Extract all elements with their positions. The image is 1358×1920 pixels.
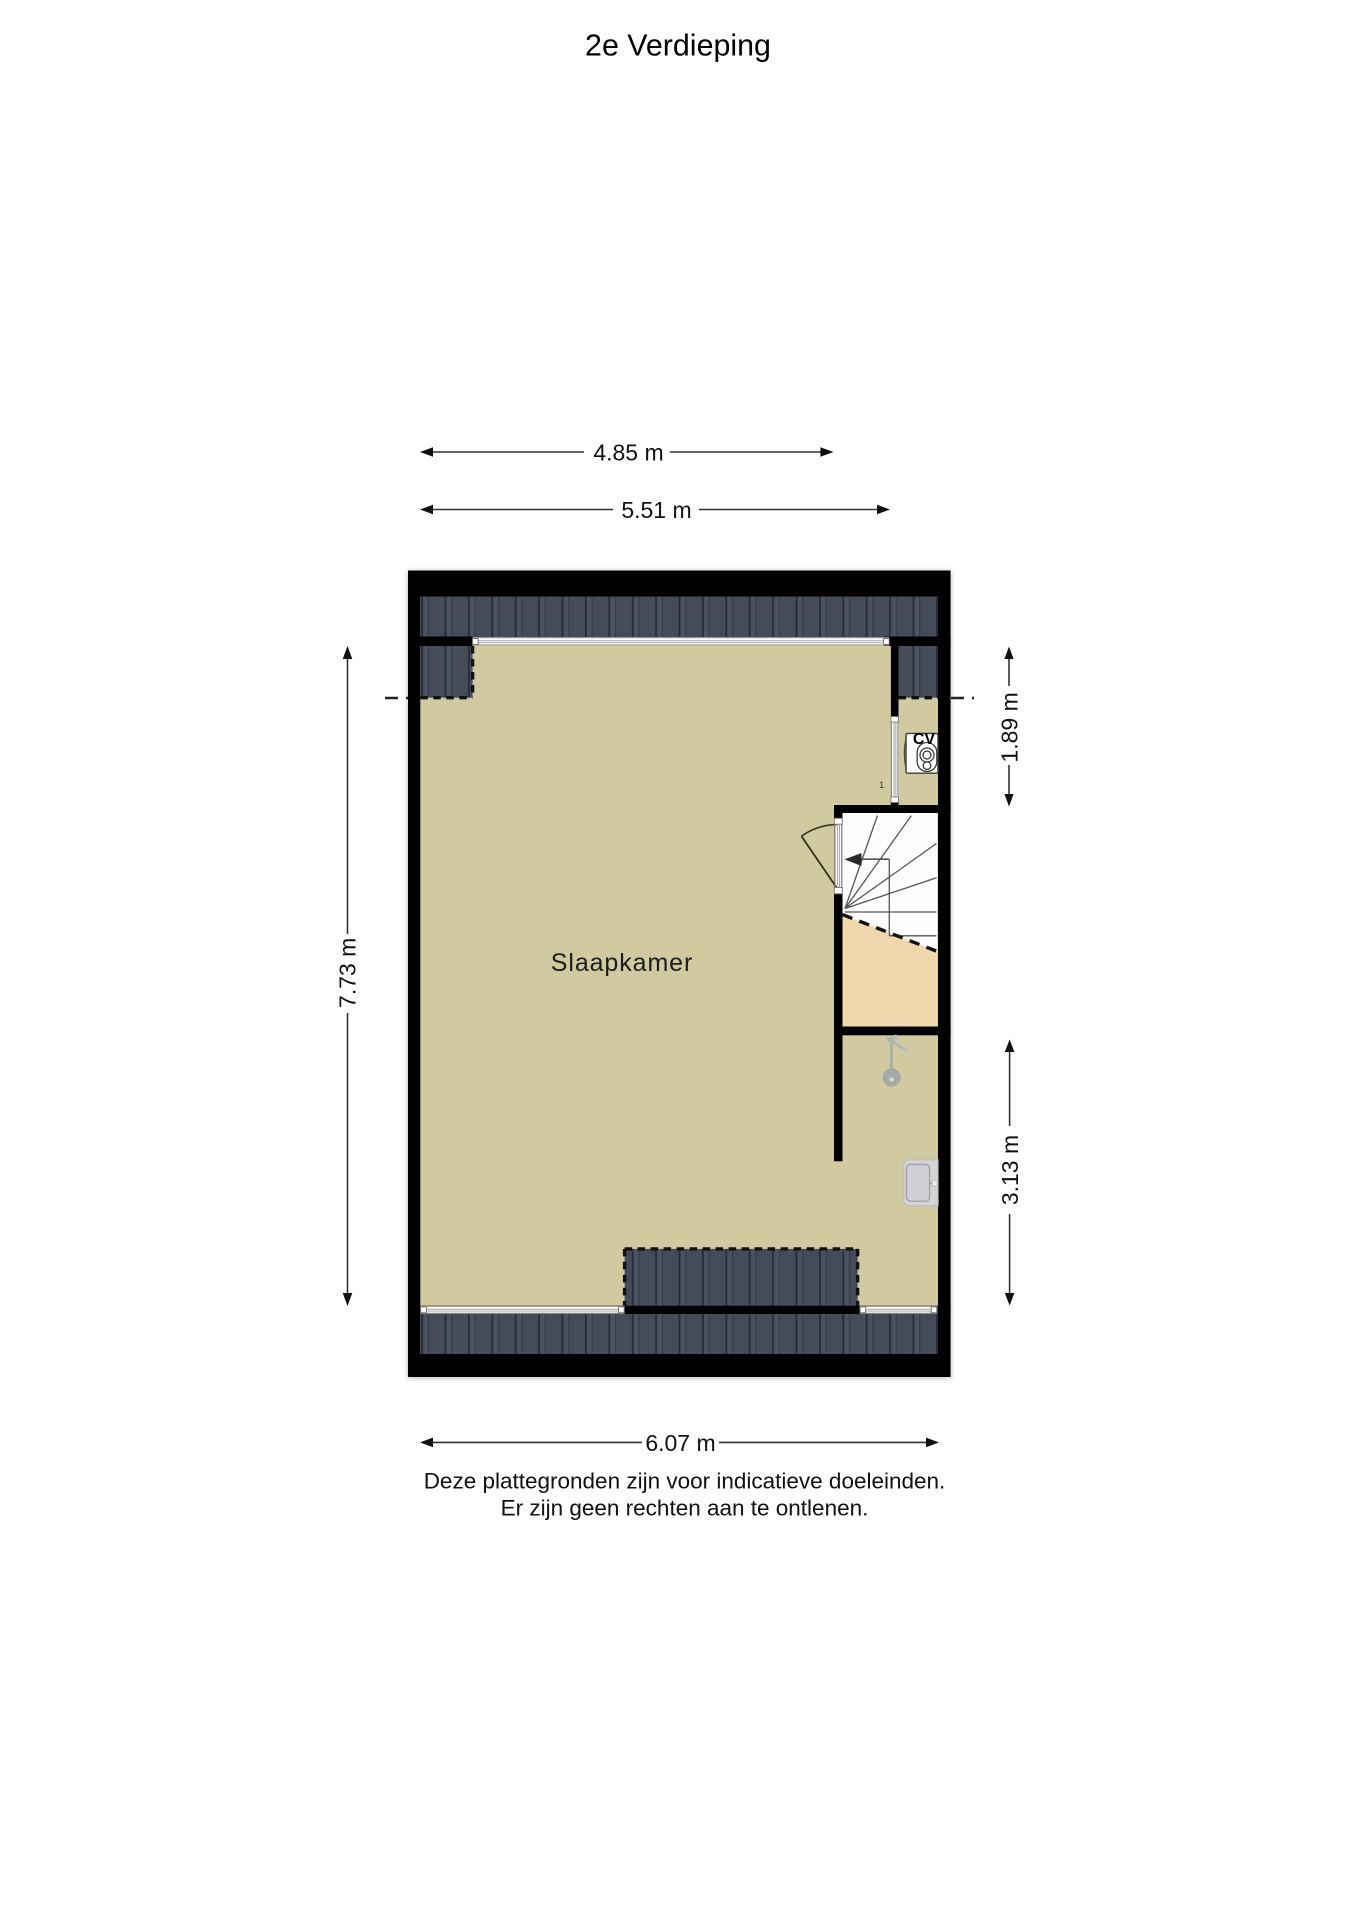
svg-text:4.85 m: 4.85 m [593, 440, 663, 466]
svg-text:5.51 m: 5.51 m [621, 497, 691, 523]
svg-text:1.89 m: 1.89 m [996, 692, 1022, 762]
svg-text:Slaapkamer: Slaapkamer [551, 949, 693, 977]
svg-text:7.73 m: 7.73 m [335, 938, 361, 1008]
svg-text:6.07 m: 6.07 m [645, 1430, 715, 1456]
svg-text:Er zijn geen rechten aan te on: Er zijn geen rechten aan te ontlenen. [501, 1496, 869, 1521]
svg-text:Deze plattegronden zijn voor i: Deze plattegronden zijn voor indicatieve… [424, 1469, 946, 1494]
svg-text:1: 1 [879, 780, 884, 791]
svg-text:CV: CV [913, 731, 936, 748]
svg-text:3.13 m: 3.13 m [997, 1135, 1023, 1205]
svg-text:2e Verdieping: 2e Verdieping [585, 29, 771, 63]
